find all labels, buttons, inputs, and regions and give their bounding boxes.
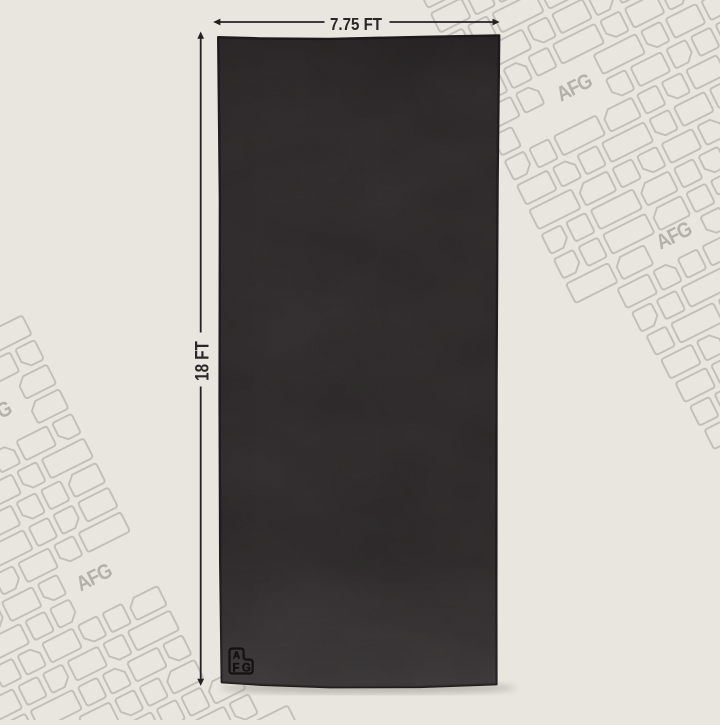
svg-text:A: A [233,651,240,662]
svg-text:18 FT: 18 FT [191,341,213,381]
svg-text:G: G [242,663,251,675]
svg-text:F: F [232,662,239,674]
svg-text:7.75 FT: 7.75 FT [330,14,382,35]
